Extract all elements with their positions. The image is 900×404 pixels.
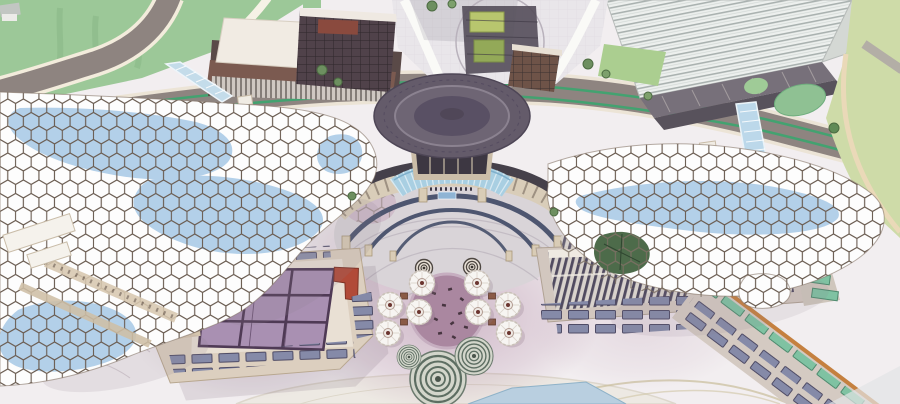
rendering-canvas: Aerial 3D architectural rendering of a m… [0, 0, 900, 404]
spiral-fountain-small [397, 345, 421, 369]
spiral-fountain-medium [455, 337, 493, 375]
entrance-door [438, 192, 456, 199]
architectural-rendering: Aerial 3D architectural rendering of a m… [0, 0, 900, 404]
lattice-pavilion [508, 44, 562, 92]
